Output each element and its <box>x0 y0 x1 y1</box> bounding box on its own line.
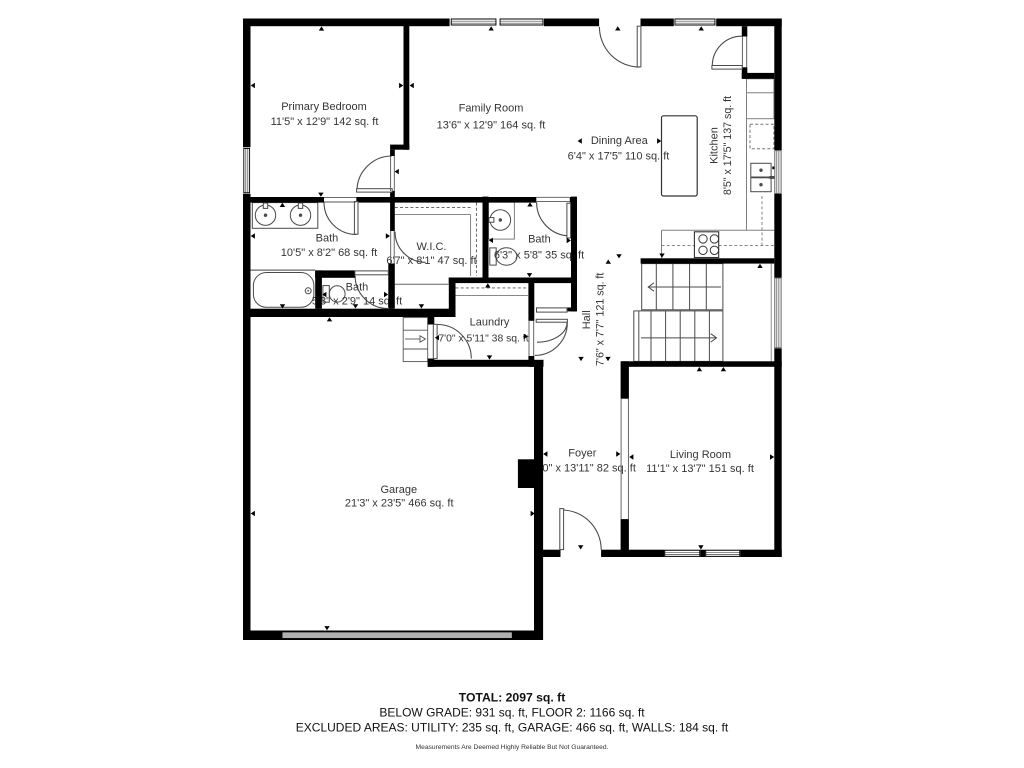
svg-text:Laundry: Laundry <box>470 317 510 329</box>
svg-text:13'6" x 12'9" 164 sq. ft: 13'6" x 12'9" 164 sq. ft <box>437 120 546 132</box>
svg-text:EXCLUDED AREAS: UTILITY: 235 s: EXCLUDED AREAS: UTILITY: 235 sq. ft, GAR… <box>296 721 729 735</box>
svg-text:BELOW GRADE: 931 sq. ft, FLOOR: BELOW GRADE: 931 sq. ft, FLOOR 2: 1166 s… <box>379 705 645 719</box>
svg-text:W.I.C.: W.I.C. <box>417 241 447 253</box>
svg-text:10'0" x 13'11" 82 sq. ft: 10'0" x 13'11" 82 sq. ft <box>528 463 636 475</box>
svg-text:11'5" x 12'9" 142 sq. ft: 11'5" x 12'9" 142 sq. ft <box>271 116 379 128</box>
svg-text:10'5" x 8'2" 68 sq. ft: 10'5" x 8'2" 68 sq. ft <box>281 247 377 259</box>
svg-text:6'7" x 8'1" 47 sq. ft: 6'7" x 8'1" 47 sq. ft <box>386 255 476 267</box>
svg-text:6'3" x 5'8" 35 sq. ft: 6'3" x 5'8" 35 sq. ft <box>494 250 584 262</box>
svg-text:21'3" x 23'5" 466 sq. ft: 21'3" x 23'5" 466 sq. ft <box>345 498 454 510</box>
svg-text:Bath: Bath <box>316 233 339 245</box>
svg-text:Foyer: Foyer <box>568 448 596 460</box>
svg-text:Bath: Bath <box>346 282 369 294</box>
svg-text:Primary Bedroom: Primary Bedroom <box>281 101 367 113</box>
svg-text:8'5" x 17'5" 137 sq. ft: 8'5" x 17'5" 137 sq. ft <box>722 96 734 195</box>
svg-text:Kitchen: Kitchen <box>708 127 720 164</box>
svg-text:6'4" x 17'5" 110 sq. ft: 6'4" x 17'5" 110 sq. ft <box>568 151 670 163</box>
svg-text:7'0" x 5'11" 38 sq. ft: 7'0" x 5'11" 38 sq. ft <box>438 334 528 345</box>
svg-text:Garage: Garage <box>380 484 417 496</box>
svg-text:7'6" x 7'7" 121 sq. ft: 7'6" x 7'7" 121 sq. ft <box>594 273 606 366</box>
svg-text:Family Room: Family Room <box>459 103 524 115</box>
svg-text:11'1" x 13'7" 151 sq. ft: 11'1" x 13'7" 151 sq. ft <box>646 463 754 475</box>
svg-text:Dining Area: Dining Area <box>591 135 649 147</box>
svg-text:Living Room: Living Room <box>670 449 731 461</box>
svg-text:TOTAL: 2097 sq. ft: TOTAL: 2097 sq. ft <box>459 691 566 705</box>
svg-text:Measurements Are Deemed Highly: Measurements Are Deemed Highly Reliable … <box>416 744 609 751</box>
svg-text:Hall: Hall <box>581 310 593 329</box>
svg-text:Bath: Bath <box>528 234 551 246</box>
